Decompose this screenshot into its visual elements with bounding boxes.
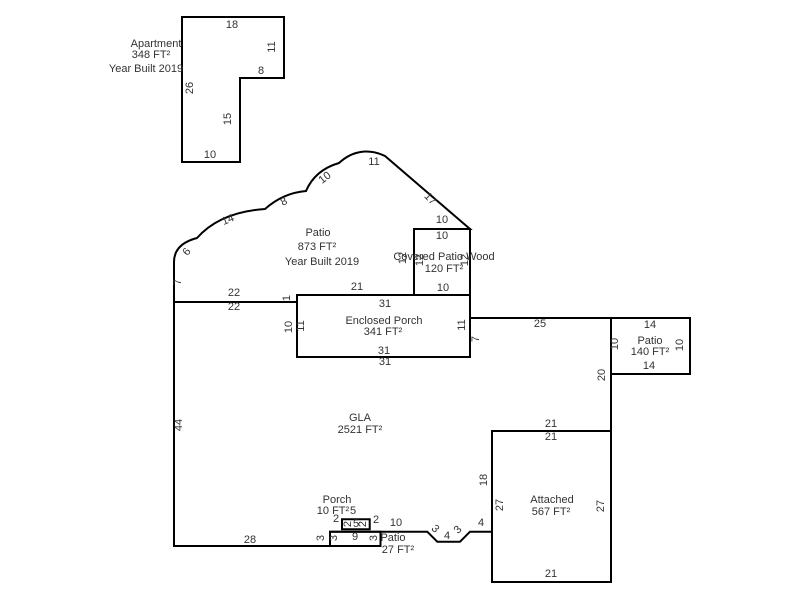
patio-27-dim: 9	[352, 531, 358, 543]
patio-873-area: 873 FT²	[298, 241, 337, 253]
gla-dim: 3	[315, 535, 327, 541]
covered-patio-wood-name: Covered Patio Wood	[393, 251, 494, 263]
patio-27-name: Patio	[380, 532, 405, 544]
apartment-dim: 11	[266, 41, 278, 52]
gla-dim: 3	[452, 524, 465, 537]
porch-dim: 5	[350, 505, 356, 517]
patio-140-dim: 14	[643, 360, 655, 372]
apartment-dim: 15	[222, 113, 234, 125]
apartment-dim: 18	[226, 19, 238, 31]
gla-dim: 2	[373, 514, 379, 526]
patio-873-dim: 8	[279, 195, 290, 208]
gla-dim: 4	[444, 530, 450, 542]
gla-dim: 44	[173, 419, 185, 431]
gla-area: 2521 FT²	[338, 424, 383, 436]
sketch-page: Apartment348 FT²Year Built 2019181182615…	[0, 0, 800, 600]
patio-27-dim: 3	[328, 535, 340, 541]
gla-dim: 21	[545, 418, 557, 430]
gla-dim: 10	[283, 321, 295, 333]
apartment-dim: 26	[184, 82, 196, 94]
apartment-outline	[182, 17, 284, 162]
enclosed-porch-dim: 11	[295, 320, 307, 331]
patio-873-dim: 22	[228, 287, 240, 299]
gla-dim: 18	[478, 474, 490, 486]
patio-873-dim: 10	[436, 214, 448, 226]
gla-dim: 22	[228, 301, 240, 313]
shape-outlines	[174, 17, 690, 582]
patio-140-dim: 14	[644, 319, 656, 331]
covered-patio-wood-dim: 12	[459, 254, 471, 266]
patio-873-dim: 1	[281, 295, 293, 301]
gla-name: GLA	[349, 412, 372, 424]
sketch-svg: Apartment348 FT²Year Built 2019181182615…	[0, 0, 800, 600]
patio-873-dim: 21	[351, 281, 363, 293]
attached-area: 567 FT²	[532, 506, 571, 518]
enclosed-porch-area: 341 FT²	[364, 326, 403, 338]
labels-layer: Apartment348 FT²Year Built 2019181182615…	[109, 19, 686, 580]
covered-patio-wood-dim: 12	[414, 254, 426, 266]
attached-dim: 27	[494, 499, 506, 511]
enclosed-porch-dim: 31	[379, 298, 391, 310]
gla-dim: 3	[429, 523, 442, 536]
apartment-dim: 10	[204, 149, 216, 161]
apartment-dim: 8	[258, 65, 264, 77]
covered-patio-wood-area: 120 FT²	[425, 263, 464, 275]
attached-dim: 21	[545, 568, 557, 580]
gla-dim: 20	[596, 369, 608, 381]
patio-873-dim: 11	[368, 156, 379, 168]
patio-873-dim: 6	[180, 246, 193, 258]
patio-873-name: Patio	[305, 227, 330, 239]
attached-dim: 27	[595, 500, 607, 512]
porch-area: 10 FT²	[317, 505, 350, 517]
gla-dim: 4	[478, 517, 484, 529]
covered-patio-wood-dim: 10	[436, 230, 448, 242]
attached-name: Attached	[530, 494, 573, 506]
apartment-year: Year Built 2019	[109, 63, 183, 75]
patio-140-dim: 10	[609, 338, 621, 350]
covered-patio-wood-dim: 10	[437, 282, 449, 294]
apartment-area: 348 FT²	[132, 49, 171, 61]
gla-dim: 31	[379, 356, 391, 368]
patio-873-year: Year Built 2019	[285, 256, 359, 268]
gla-dim: 7	[470, 336, 482, 342]
patio-27-dim: 3	[368, 535, 380, 541]
gla-dim: 10	[390, 517, 402, 529]
enclosed-porch-dim: 11	[456, 319, 468, 330]
attached-dim: 21	[545, 431, 557, 443]
patio-873-dim: 17	[421, 190, 438, 207]
patio-27-area: 27 FT²	[382, 544, 415, 556]
patio-140-area: 140 FT²	[631, 346, 670, 358]
gla-dim: 28	[244, 534, 256, 546]
porch-dim: 2	[357, 521, 369, 527]
patio-140-dim: 10	[674, 339, 686, 351]
patio-873-dim: 7	[172, 279, 184, 285]
gla-dim: 25	[534, 318, 546, 330]
